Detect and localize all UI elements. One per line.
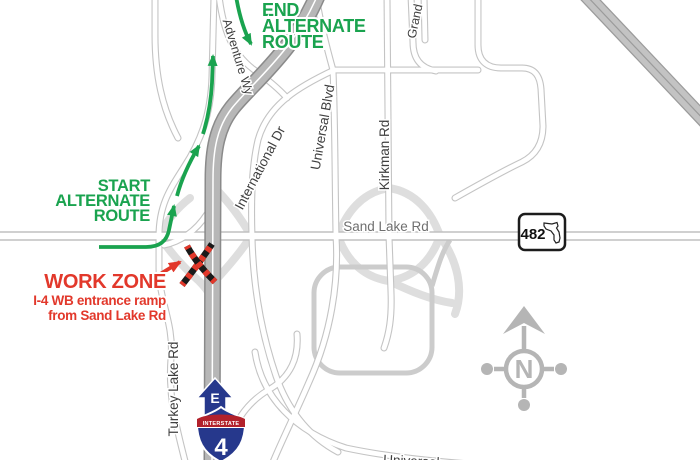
interstate-band-text: INTERSTATE (203, 421, 240, 427)
label-adventure-wy: Adventure Wy (220, 17, 257, 97)
work-zone-title: WORK ZONE (44, 271, 166, 293)
work-zone-detail-line2: from Sand Lake Rd (48, 308, 166, 323)
start-route-label-line3: ROUTE (94, 207, 151, 225)
traffic-detour-map: Sand Lake Rd International Dr Universal … (0, 0, 700, 460)
map-canvas: Sand Lake Rd International Dr Universal … (0, 0, 700, 460)
eastbound-letter: E (210, 390, 219, 406)
i4-shield: E INTERSTATE 4 (197, 378, 245, 460)
compass-rose: N (481, 306, 567, 411)
label-turkey-lake-rd: Turkey Lake Rd (166, 342, 181, 437)
work-zone-detail-line1: I-4 WB entrance ramp (33, 293, 166, 308)
label-universal-bottom: Universal (383, 452, 440, 460)
interstate-number: 4 (214, 434, 228, 460)
label-sand-lake-rd: Sand Lake Rd (343, 219, 429, 234)
sr482-number: 482 (520, 226, 545, 243)
compass-north-letter: N (515, 354, 534, 384)
end-route-label-line3: ROUTE (262, 32, 324, 52)
work-zone-labels: WORK ZONE I-4 WB entrance ramp from Sand… (33, 271, 166, 323)
sr482-shield: 482 (519, 214, 565, 250)
label-kirkman-rd: Kirkman Rd (377, 120, 392, 191)
turnpike-highway (585, 0, 700, 122)
